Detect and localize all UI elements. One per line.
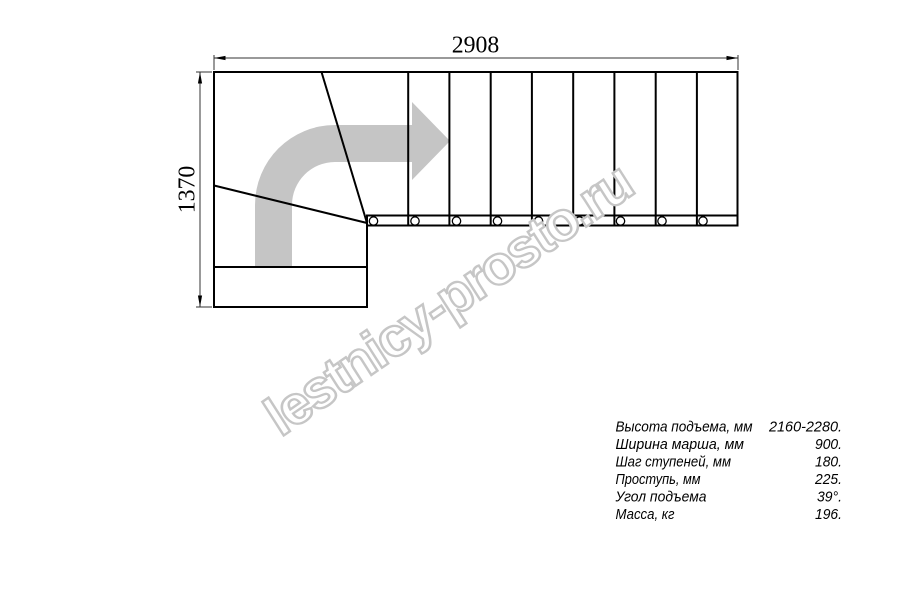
- svg-text:2160-2280.: 2160-2280.: [768, 420, 842, 436]
- svg-text:Проступь, мм: Проступь, мм: [616, 472, 701, 488]
- svg-text:225.: 225.: [814, 472, 842, 488]
- svg-text:900.: 900.: [815, 437, 842, 453]
- svg-text:Масса, кг: Масса, кг: [616, 507, 675, 523]
- svg-text:39°.: 39°.: [817, 490, 842, 506]
- svg-text:180.: 180.: [815, 455, 842, 471]
- svg-text:Высота подъема, мм: Высота подъема, мм: [616, 420, 753, 436]
- svg-text:196.: 196.: [815, 507, 842, 523]
- svg-text:Шаг ступеней, мм: Шаг ступеней, мм: [616, 455, 732, 471]
- svg-text:Ширина марша, мм: Ширина марша, мм: [616, 437, 745, 453]
- svg-text:Угол подъема: Угол подъема: [615, 490, 707, 506]
- svg-text:2908: 2908: [452, 32, 500, 58]
- svg-text:1370: 1370: [174, 166, 200, 214]
